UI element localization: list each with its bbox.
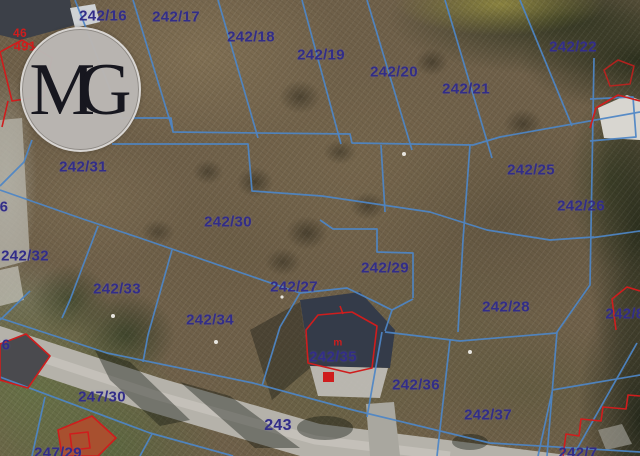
cadastral-map-view[interactable]: 242/16242/17242/18242/19242/20242/21242/… <box>0 0 640 456</box>
logo-letter-g: G <box>78 53 131 127</box>
mg-logo-watermark: M G <box>20 27 141 152</box>
driveway <box>366 402 400 456</box>
